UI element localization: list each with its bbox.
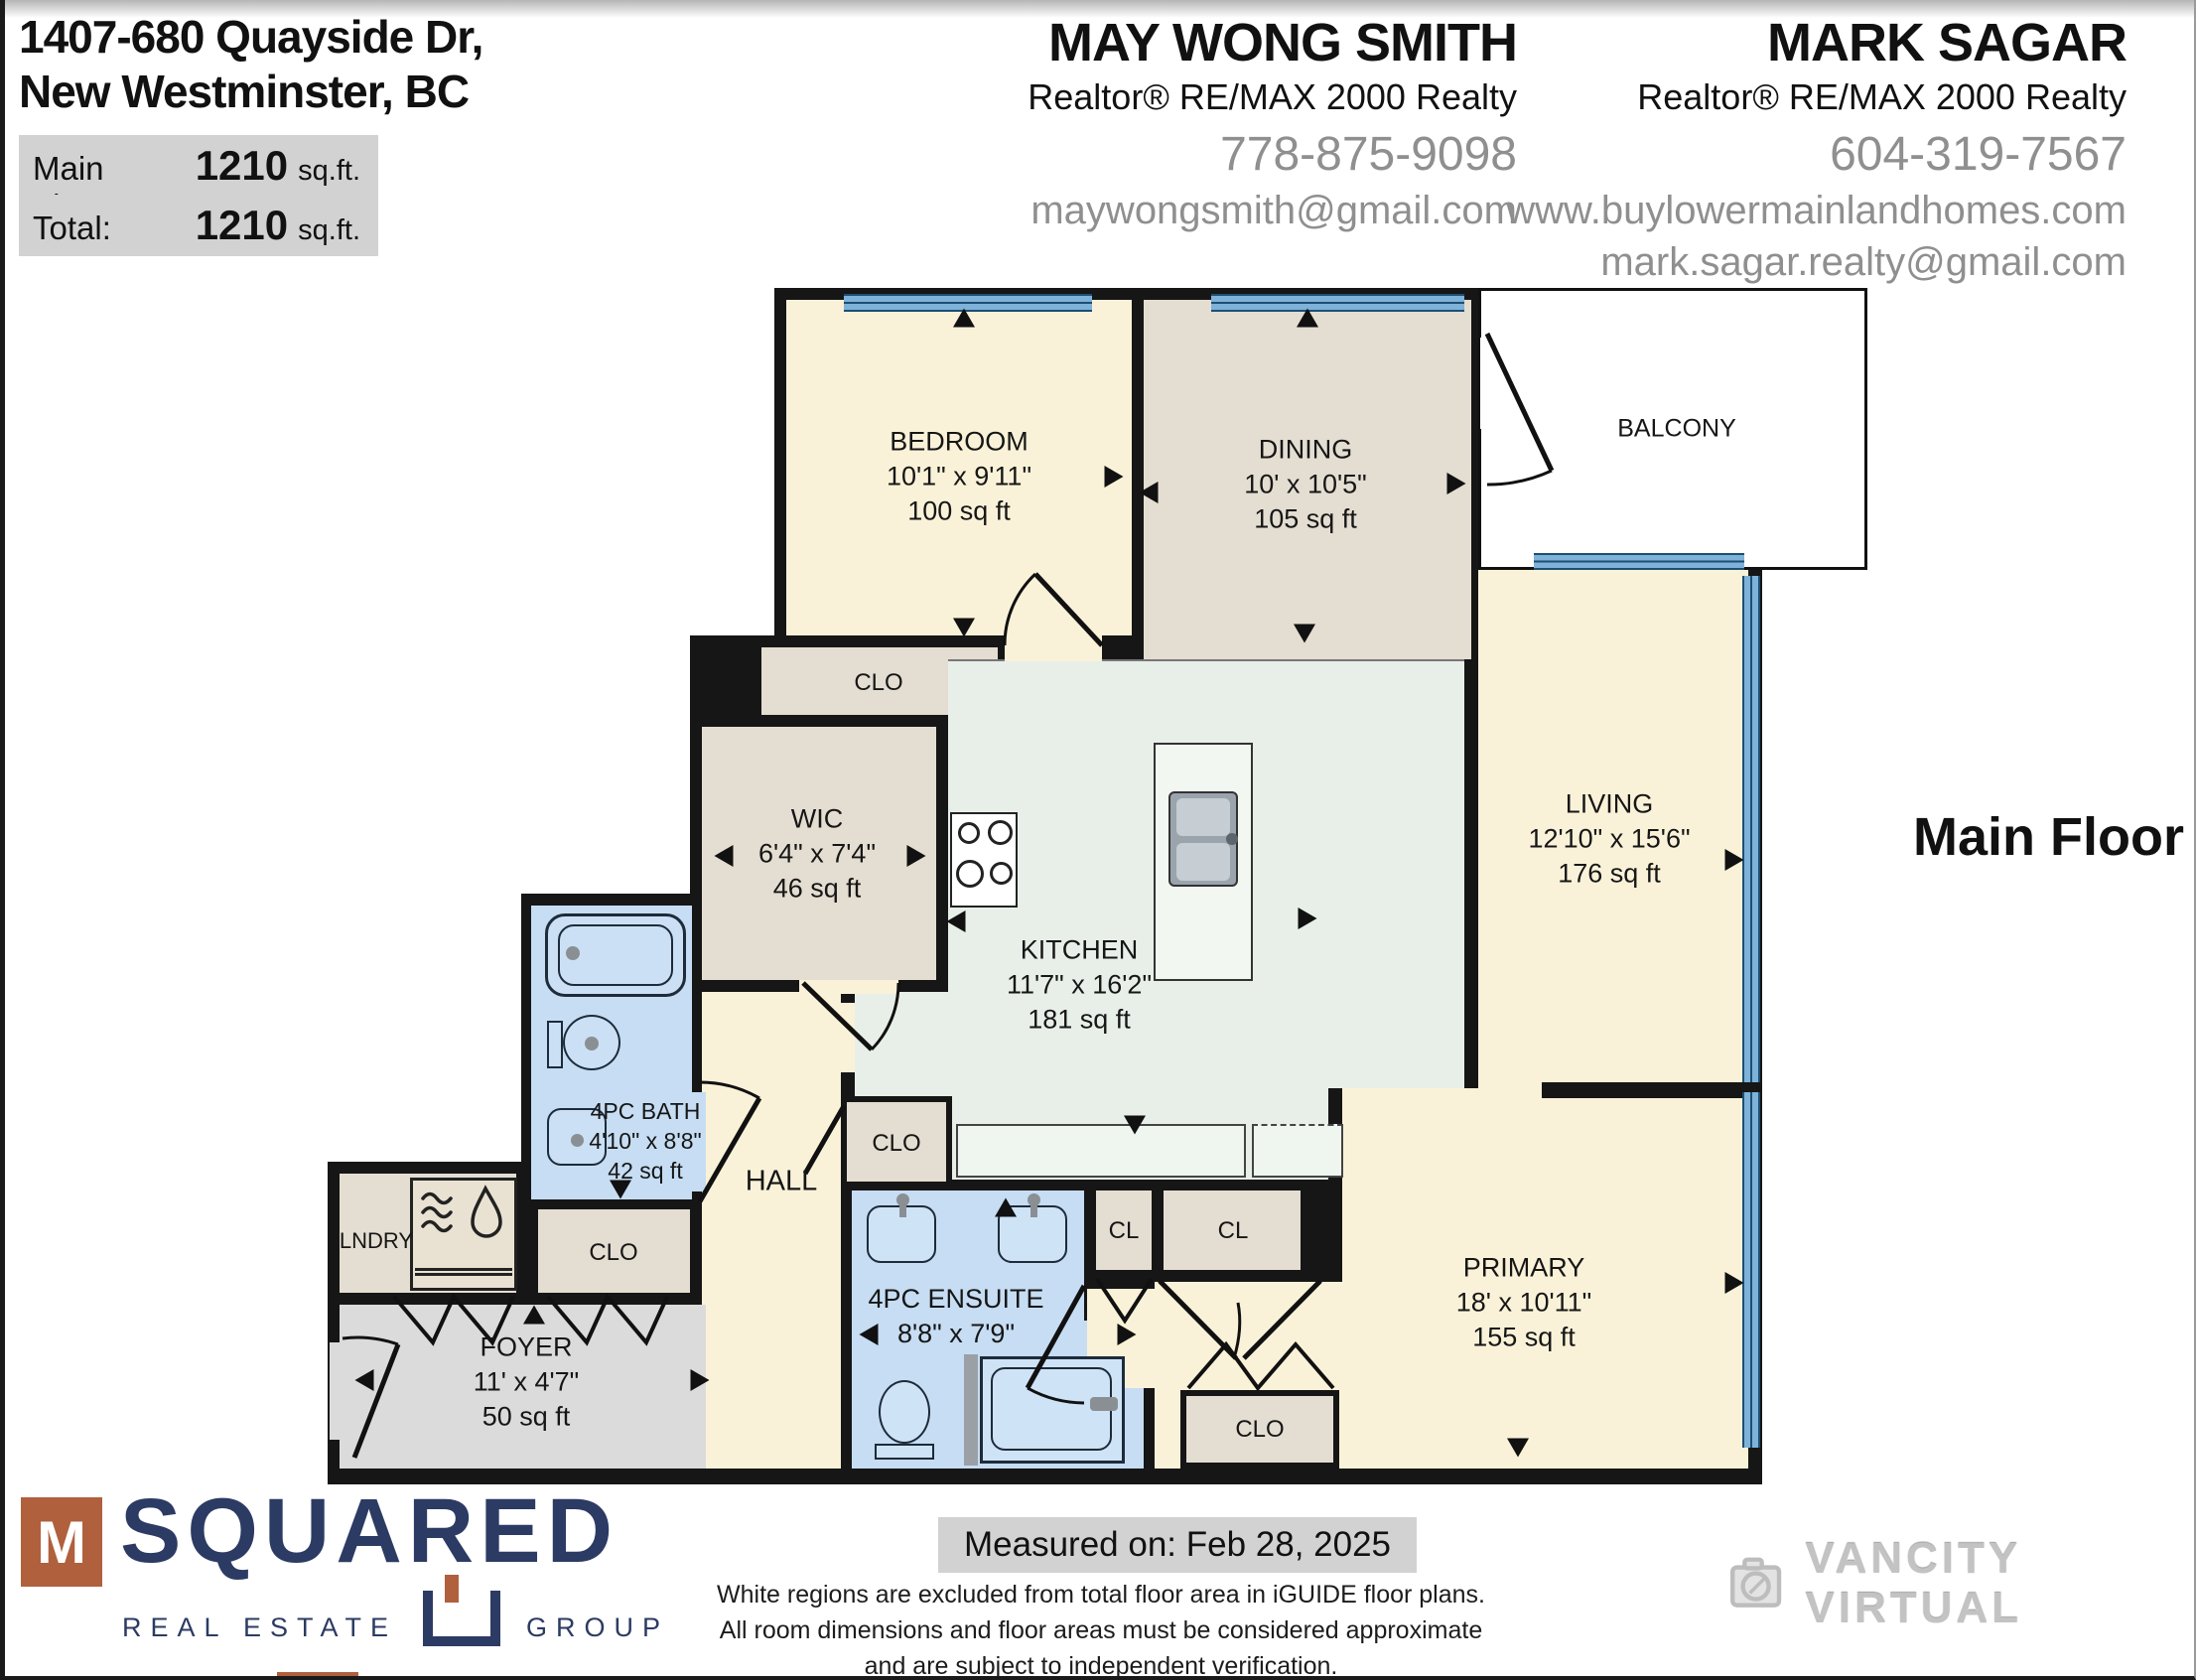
- window-dining: [1211, 294, 1464, 312]
- disclaimer-line: and are subject to independent verificat…: [865, 1652, 1338, 1680]
- agent-website: www.buylowermainlandhomes.com: [1506, 191, 2127, 230]
- agent-title: Realtor® RE/MAX 2000 Realty: [1028, 79, 1517, 115]
- orientation-arrow: [523, 1306, 545, 1325]
- agent-phone: 604-319-7567: [1506, 131, 2127, 179]
- orientation-arrow: [691, 1369, 710, 1391]
- ensuite-toilet-icon: [879, 1380, 930, 1444]
- label-clo-bedroom: CLO: [854, 669, 902, 697]
- label-kitchen: KITCHEN11'7" x 16'2"181 sq ft: [1007, 932, 1152, 1037]
- orientation-arrow: [1725, 849, 1744, 871]
- disclaimer-line: All room dimensions and floor areas must…: [720, 1616, 1482, 1645]
- ensuite-toilet-tank: [875, 1444, 934, 1460]
- label-primary: PRIMARY18' x 10'11"155 sq ft: [1456, 1250, 1592, 1354]
- label-clo-hall: CLO: [872, 1130, 920, 1158]
- orientation-arrow: [1118, 1324, 1137, 1345]
- label-wic: WIC6'4" x 7'4"46 sq ft: [758, 801, 876, 906]
- kitchen-island: [1154, 743, 1253, 981]
- floor-name-label: Main Floor: [1913, 806, 2184, 868]
- label-ensuite: 4PC ENSUITE8'8" x 7'9": [868, 1282, 1043, 1351]
- label-bedroom: BEDROOM10'1" x 9'11"100 sq ft: [887, 424, 1031, 528]
- orientation-arrow: [1507, 1439, 1529, 1458]
- address-line-1: 1407-680 Quayside Dr,: [19, 10, 482, 65]
- area-unit: sq.ft.: [298, 214, 360, 247]
- orientation-arrow: [995, 1198, 1017, 1217]
- orientation-arrow: [1297, 309, 1318, 328]
- opening-balcony-door: [1480, 338, 1490, 429]
- washer-dryer-icon: [410, 1178, 517, 1291]
- vancity-virtual-logo: VANCITY VIRTUAL: [1727, 1534, 2194, 1633]
- opening-living-primary: [1484, 1082, 1542, 1100]
- agent-card-may-wong-smith: MAY WONG SMITH Realtor® RE/MAX 2000 Real…: [1028, 16, 1517, 230]
- window-living: [1742, 576, 1760, 1082]
- label-cl-small: CL: [1109, 1217, 1140, 1245]
- orientation-arrow: [860, 1324, 879, 1345]
- address-line-2: New Westminster, BC: [19, 65, 482, 119]
- opening-entry-door: [330, 1342, 342, 1440]
- orientation-arrow: [953, 309, 975, 328]
- house-icon: [423, 1591, 500, 1646]
- dishwasher-icon: [1252, 1124, 1343, 1178]
- label-foyer: FOYER11' x 4'7"50 sq ft: [474, 1330, 579, 1434]
- orientation-arrow: [1299, 908, 1317, 929]
- ensuite-sink-left: [867, 1205, 936, 1263]
- camera-icon: [1727, 1551, 1789, 1616]
- measured-on-badge: Measured on: Feb 28, 2025: [938, 1517, 1417, 1573]
- area-row-total: Total: 1210 sq.ft.: [19, 195, 378, 256]
- room-hall: [702, 992, 841, 1469]
- double-sink-icon: [1168, 791, 1238, 887]
- msquared-subtitle: REAL ESTATE GROUP: [122, 1609, 669, 1646]
- orientation-arrow: [715, 845, 734, 867]
- orientation-arrow: [1447, 473, 1466, 494]
- area-label: Total:: [33, 210, 196, 247]
- msquared-group: GROUP: [526, 1612, 669, 1643]
- label-bath: 4PC BATH4'10" x 8'8"42 sq ft: [589, 1097, 701, 1187]
- bathtub-icon: [545, 913, 686, 997]
- orientation-arrow: [1140, 482, 1159, 503]
- orientation-arrow: [1294, 625, 1315, 643]
- msquared-logo: M SQUARED REAL ESTATE GROUP: [21, 1491, 716, 1675]
- msquared-real-estate: REAL ESTATE: [122, 1612, 397, 1643]
- property-address: 1407-680 Quayside Dr, New Westminster, B…: [19, 10, 482, 119]
- orientation-arrow: [947, 910, 966, 932]
- label-laundry: LNDRY: [340, 1228, 413, 1254]
- window-primary: [1742, 1092, 1760, 1448]
- label-hall: HALL: [746, 1166, 818, 1198]
- toilet-tank: [547, 1021, 563, 1068]
- disclaimer-line: White regions are excluded from total fl…: [717, 1581, 1485, 1610]
- orientation-arrow: [953, 619, 975, 637]
- label-clo-foyer: CLO: [589, 1239, 637, 1267]
- opening-wic-door: [799, 980, 898, 994]
- label-cl-wide: CL: [1218, 1217, 1249, 1245]
- room-kitchen-ext: [855, 992, 948, 1096]
- area-value: 1210: [196, 202, 288, 249]
- area-unit: sq.ft.: [298, 155, 360, 188]
- agent-phone: 778-875-9098: [1028, 131, 1517, 179]
- opening-hall-kitchen: [841, 1003, 855, 1072]
- orientation-arrow: [1124, 1116, 1146, 1135]
- orientation-arrow: [1725, 1272, 1744, 1294]
- label-dining: DINING10' x 10'5"105 sq ft: [1244, 432, 1366, 536]
- orientation-arrow: [907, 845, 926, 867]
- label-living: LIVING12'10" x 15'6"176 sq ft: [1528, 786, 1690, 891]
- agent-title: Realtor® RE/MAX 2000 Realty: [1506, 79, 2127, 115]
- kitchen-counter: [956, 1124, 1246, 1178]
- msquared-wordmark: SQUARED: [120, 1479, 618, 1584]
- shower-door-jamb: [964, 1354, 978, 1466]
- floor-plan-page: 1407-680 Quayside Dr, New Westminster, B…: [0, 0, 2196, 1680]
- vancity-wordmark: VANCITY VIRTUAL: [1805, 1534, 2194, 1633]
- area-value: 1210: [196, 142, 288, 190]
- msquared-m-mark: M: [21, 1497, 102, 1587]
- wall-living-primary: [1542, 1082, 1748, 1098]
- label-balcony: BALCONY: [1617, 415, 1735, 444]
- label-clo-primary: CLO: [1235, 1416, 1284, 1444]
- agent-name: MARK SAGAR: [1506, 16, 2127, 70]
- stove-icon: [950, 812, 1018, 908]
- shower-icon: [980, 1356, 1125, 1464]
- agent-email: maywongsmith@gmail.com: [1028, 191, 1517, 230]
- orientation-arrow: [610, 1181, 631, 1199]
- opening-bedroom-door: [1005, 635, 1102, 661]
- agent-card-mark-sagar: MARK SAGAR Realtor® RE/MAX 2000 Realty 6…: [1506, 16, 2127, 282]
- agent-name: MAY WONG SMITH: [1028, 16, 1517, 70]
- window-balcony: [1534, 553, 1744, 570]
- msquared-underline: [277, 1672, 358, 1680]
- orientation-arrow: [355, 1369, 374, 1391]
- agent-email: mark.sagar.realty@gmail.com: [1506, 242, 2127, 282]
- orientation-arrow: [1105, 466, 1124, 488]
- toilet-icon: [563, 1015, 620, 1070]
